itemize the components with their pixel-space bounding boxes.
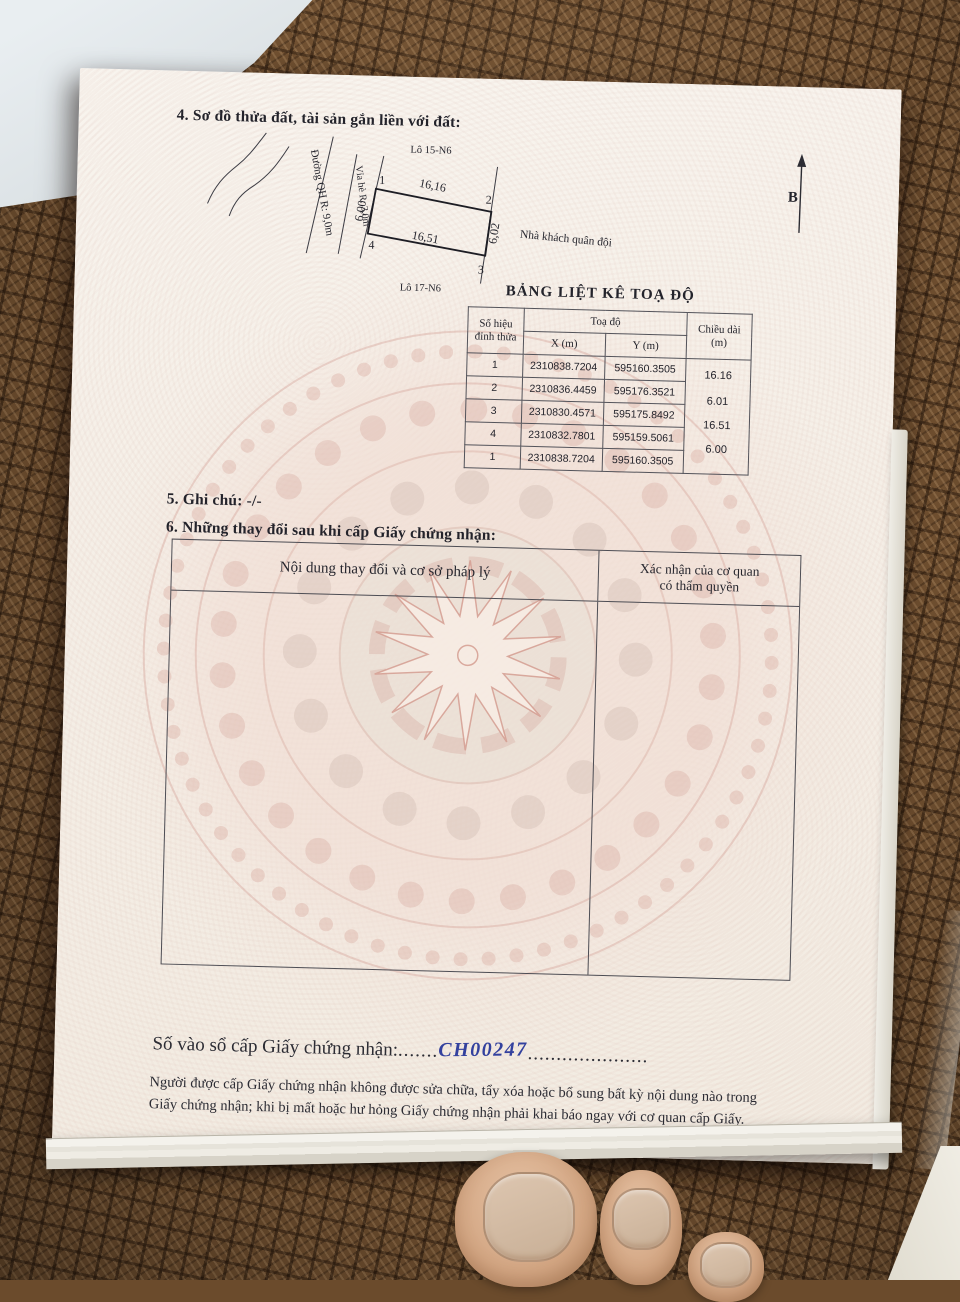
parcel-outline: [367, 189, 492, 256]
lot-below-label: Lô 17-N6: [400, 282, 441, 294]
corner-4-label: 4: [368, 238, 374, 252]
header-length: Chiều dài (m): [686, 312, 752, 360]
cell-point: 4: [465, 422, 522, 446]
lot-above-label: Lô 15-N6: [410, 145, 451, 157]
cell-x: 2310838.7204: [523, 354, 605, 379]
street-corner-inner-line: [229, 145, 289, 217]
north-arrow-icon: B: [781, 152, 823, 238]
segment-length: 6.00: [684, 443, 748, 457]
authority-header-line1: Xác nhận của cơ quan: [640, 561, 760, 580]
cell-point: 1: [467, 353, 524, 377]
cell-point: 2: [466, 376, 523, 400]
cell-y: 595176.3521: [603, 379, 685, 404]
cell-y: 595159.5061: [602, 425, 684, 450]
parcel-diagram: Lô 15-N6 Lô 17-N6 Đường QH R: 9,0m Vỉa h…: [196, 130, 670, 302]
coordinate-table-title: BẢNG LIỆT KÊ TOẠ ĐỘ: [450, 282, 750, 307]
authority-header-line2: có thẩm quyền: [659, 577, 739, 595]
north-label: B: [788, 190, 798, 206]
corner-3-label: 3: [478, 262, 484, 276]
changes-table: Nội dung thay đổi và cơ sở pháp lý Xác n…: [161, 539, 802, 981]
cell-x: 2310830.4571: [521, 400, 603, 425]
changes-authority-cell: [589, 602, 799, 980]
third-toe-nail: [700, 1242, 752, 1288]
cell-x: 2310832.7801: [521, 423, 603, 448]
segment-length: 6.01: [685, 395, 749, 409]
dotted-leader: .......: [398, 1040, 439, 1062]
changes-table-body: [162, 591, 800, 980]
dotted-leader: .....................: [527, 1043, 648, 1067]
cell-y: 595160.3505: [602, 448, 684, 473]
segment-length: 16.16: [686, 369, 750, 383]
handwritten-registry-number: CH00247: [438, 1038, 528, 1062]
edge-bottom-length: 16,51: [411, 228, 440, 247]
land-certificate-page: 4. Sơ đồ thửa đất, tài sản gắn liền với …: [52, 68, 902, 1164]
header-length-line1: Chiều dài: [698, 324, 741, 337]
cell-x: 2310836.4459: [522, 377, 604, 402]
header-x: X (m): [523, 331, 605, 356]
header-y: Y (m): [605, 333, 687, 358]
big-toe-nail: [483, 1172, 575, 1262]
street-corner-outer-line: [207, 131, 266, 204]
changes-content-cell: [162, 591, 599, 975]
cell-x: 2310838.7204: [520, 446, 602, 471]
road-label: Đường QH R: 9,0m: [308, 149, 336, 238]
registry-label: Số vào sổ cấp Giấy chứng nhận:: [152, 1033, 398, 1060]
cell-point: 3: [465, 399, 522, 423]
second-toe-nail: [612, 1188, 671, 1250]
header-length-line2: (m): [711, 336, 727, 348]
header-point-id: Số hiệu đỉnh thửa: [467, 307, 524, 354]
cell-y: 595160.3505: [604, 356, 686, 381]
edge-top-length: 16,16: [418, 176, 447, 195]
segment-length: 16.51: [685, 419, 749, 433]
section5-note: 5. Ghi chú: -/-: [167, 490, 263, 510]
corner-1-label: 1: [379, 173, 385, 187]
changes-authority-header: Xác nhận của cơ quan có thẩm quyền: [599, 551, 801, 606]
section4-heading: 4. Sơ đồ thửa đất, tài sản gắn liền với …: [177, 107, 462, 132]
edge-right-length: 6,02: [485, 222, 502, 245]
neighbor-label: Nhà khách quân đội: [519, 229, 612, 250]
cell-lengths: 16.16 6.01 16.51 6.00: [683, 358, 751, 475]
corner-2-label: 2: [486, 193, 492, 207]
registry-number-line: Số vào sổ cấp Giấy chứng nhận:.......CH0…: [152, 1032, 648, 1068]
cell-y: 595175.8492: [603, 402, 685, 427]
cell-point: 1: [464, 445, 521, 469]
coordinate-table: Số hiệu đỉnh thửa Toạ độ Chiều dài (m) X…: [464, 306, 753, 475]
